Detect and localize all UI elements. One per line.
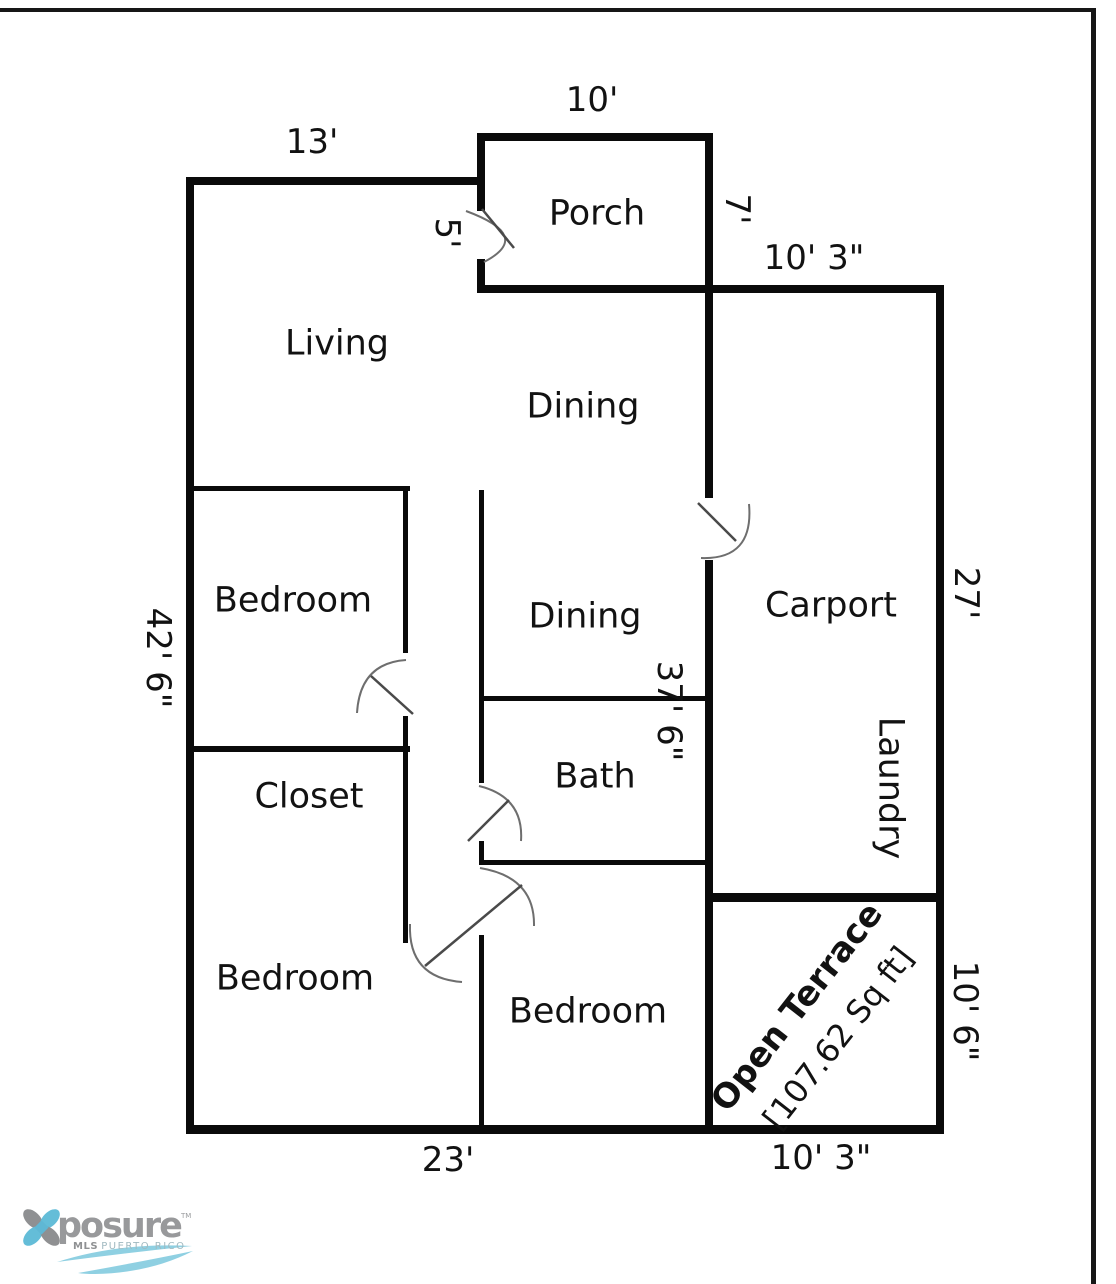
floorplan-page: Porch Living Dining Dining Bedroom Close… (0, 0, 1116, 1284)
porch-door-arc (466, 211, 505, 262)
dim-label-left-height: 42' 6" (141, 608, 175, 709)
dining-door-leaf (698, 503, 736, 541)
dim-label-terrace-right: 10' 6" (948, 961, 982, 1062)
room-label-closet: Closet (254, 780, 363, 815)
dim-label-porch-right: 7' (720, 194, 754, 225)
room-label-bath: Bath (554, 760, 635, 795)
room-label-bedroom-1: Bedroom (214, 584, 372, 619)
bedroom3-door-arc (410, 924, 462, 982)
porch-door-leaf (482, 209, 514, 248)
room-label-dining-upper: Dining (527, 390, 640, 425)
logo-mls-text: MLS (73, 1241, 98, 1252)
dim-label-porch-door: 5' (430, 218, 464, 249)
dim-label-hall-height: 37' 6" (652, 661, 686, 762)
bedroom-hall-door-leaf (425, 885, 522, 966)
room-label-bedroom-3: Bedroom (509, 995, 667, 1030)
dim-label-carport-right: 27' (949, 567, 983, 620)
dim-label-bottom-terrace: 10' 3" (771, 1141, 872, 1175)
dim-label-top-porch: 10' (566, 83, 619, 117)
room-label-dining-lower: Dining (529, 600, 642, 635)
room-label-bedroom-2: Bedroom (216, 962, 374, 997)
dim-label-carport-top: 10' 3" (764, 241, 865, 275)
room-label-carport: Carport (765, 589, 897, 624)
bath-door-arc (479, 786, 521, 841)
logo-trademark: TM (181, 1212, 191, 1220)
logo-subtitle: MLS PUERTO RICO (73, 1242, 186, 1252)
room-label-porch: Porch (549, 197, 645, 232)
dim-label-top-living: 13' (286, 125, 339, 159)
logo-brand-text: posure (57, 1209, 181, 1244)
logo-region-text: PUERTO RICO (101, 1241, 185, 1252)
bath-door-leaf (468, 800, 509, 841)
dim-label-bottom-left: 23' (422, 1143, 475, 1177)
room-label-living: Living (285, 327, 389, 362)
door-swings (357, 209, 749, 982)
bedroom1-door-leaf (371, 676, 413, 714)
room-label-laundry: Laundry (873, 717, 908, 860)
